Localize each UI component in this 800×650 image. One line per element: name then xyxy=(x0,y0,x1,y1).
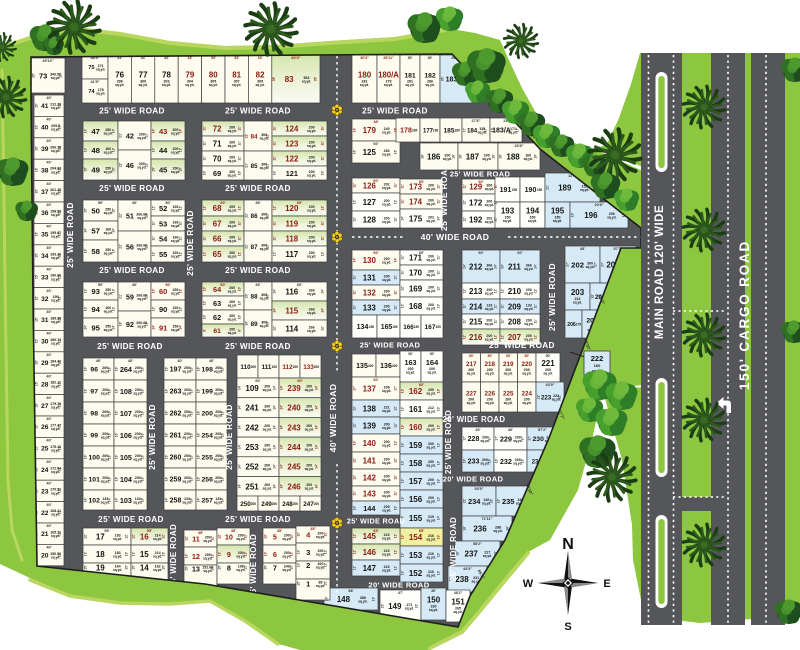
svg-text:14': 14' xyxy=(273,425,277,430)
svg-text:40': 40' xyxy=(46,396,51,400)
svg-text:88: 88 xyxy=(251,293,258,300)
svg-text:65: 65 xyxy=(213,250,222,259)
svg-text:15': 15' xyxy=(34,146,38,151)
svg-text:45: 45 xyxy=(159,165,167,174)
svg-text:40': 40' xyxy=(475,428,480,432)
svg-text:25: 25 xyxy=(41,446,49,453)
svg-text:12': 12' xyxy=(321,252,325,257)
svg-text:15': 15' xyxy=(58,510,62,515)
svg-text:12': 12' xyxy=(494,217,498,222)
svg-text:12': 12' xyxy=(211,536,215,541)
svg-text:40': 40' xyxy=(46,203,51,207)
svg-text:15': 15' xyxy=(112,167,116,172)
svg-text:sq.yd.: sq.yd. xyxy=(263,487,272,491)
svg-text:13': 13' xyxy=(437,535,441,540)
svg-text:253: 253 xyxy=(245,443,259,452)
svg-text:12': 12' xyxy=(179,206,183,211)
svg-text:21: 21 xyxy=(41,531,49,538)
svg-text:12': 12' xyxy=(238,252,242,257)
svg-text:11': 11' xyxy=(272,236,276,240)
svg-text:132: 132 xyxy=(363,289,377,298)
svg-text:16': 16' xyxy=(394,150,398,155)
svg-text:50': 50' xyxy=(165,201,170,205)
svg-text:20': 20' xyxy=(266,294,270,299)
svg-text:15': 15' xyxy=(217,565,221,570)
svg-text:110: 110 xyxy=(240,364,251,371)
svg-text:sq.yd.: sq.yd. xyxy=(382,260,391,264)
svg-text:15': 15' xyxy=(211,566,215,571)
svg-text:14': 14' xyxy=(273,484,277,489)
svg-text:202: 202 xyxy=(571,260,584,269)
svg-text:170: 170 xyxy=(409,269,423,278)
svg-text:30': 30' xyxy=(408,56,413,60)
svg-text:16': 16' xyxy=(221,433,225,438)
svg-text:13': 13' xyxy=(211,554,215,559)
svg-text:MAIN ROAD 120' WIDE: MAIN ROAD 120' WIDE xyxy=(654,205,666,339)
svg-text:15': 15' xyxy=(58,253,62,258)
svg-text:12': 12' xyxy=(244,534,248,539)
svg-text:14: 14 xyxy=(140,564,149,573)
svg-text:12': 12' xyxy=(352,550,356,555)
svg-text:43: 43 xyxy=(159,127,167,136)
svg-text:14': 14' xyxy=(237,425,241,430)
svg-text:164: 164 xyxy=(426,358,439,367)
svg-text:25' WIDE ROAD: 25' WIDE ROAD xyxy=(225,342,291,351)
svg-text:27': 27' xyxy=(594,262,598,267)
svg-text:15': 15' xyxy=(34,103,38,108)
svg-text:24: 24 xyxy=(41,467,49,474)
svg-text:14': 14' xyxy=(83,129,87,134)
svg-text:16': 16' xyxy=(196,433,200,438)
svg-text:11': 11' xyxy=(272,156,276,160)
svg-text:180: 180 xyxy=(412,129,418,133)
svg-text:11': 11' xyxy=(462,319,466,323)
svg-text:sq.yd.: sq.yd. xyxy=(307,329,316,333)
svg-text:71'11": 71'11" xyxy=(482,517,493,521)
svg-text:60': 60' xyxy=(419,180,424,184)
svg-text:13': 13' xyxy=(437,461,441,466)
svg-text:153: 153 xyxy=(409,551,423,560)
svg-text:23: 23 xyxy=(41,488,49,495)
svg-text:16': 16' xyxy=(164,367,168,372)
svg-text:15': 15' xyxy=(34,274,38,279)
svg-text:16': 16' xyxy=(114,477,118,482)
svg-text:14': 14' xyxy=(221,498,225,503)
svg-text:16': 16' xyxy=(190,433,194,438)
svg-text:16': 16' xyxy=(462,459,466,464)
svg-text:22': 22' xyxy=(266,134,270,139)
svg-text:93: 93 xyxy=(91,287,100,296)
svg-text:13': 13' xyxy=(179,289,183,294)
svg-text:19': 19' xyxy=(458,154,462,159)
svg-text:sq.yd.: sq.yd. xyxy=(228,331,237,335)
svg-text:14': 14' xyxy=(315,385,319,390)
svg-text:116: 116 xyxy=(285,288,298,297)
svg-text:16': 16' xyxy=(488,459,492,464)
svg-text:222: 222 xyxy=(591,354,604,363)
svg-text:145: 145 xyxy=(363,532,377,541)
svg-text:131: 131 xyxy=(363,274,377,283)
svg-text:40': 40' xyxy=(46,439,51,443)
svg-text:27'6": 27'6" xyxy=(471,119,480,123)
svg-text:249: 249 xyxy=(261,501,272,508)
svg-text:114: 114 xyxy=(285,325,298,334)
svg-text:15': 15' xyxy=(34,167,38,172)
svg-text:45': 45' xyxy=(310,527,315,531)
svg-text:13': 13' xyxy=(151,307,155,312)
svg-text:80: 80 xyxy=(209,71,218,80)
svg-text:254: 254 xyxy=(202,433,214,440)
svg-text:162: 162 xyxy=(409,387,423,396)
svg-text:sq.yd.: sq.yd. xyxy=(382,426,391,430)
svg-text:63: 63 xyxy=(213,299,221,308)
svg-text:79: 79 xyxy=(185,71,194,80)
svg-text:sq.yd.: sq.yd. xyxy=(382,409,391,413)
svg-text:16': 16' xyxy=(190,455,194,460)
svg-text:119: 119 xyxy=(286,220,299,229)
svg-text:12': 12' xyxy=(394,475,398,480)
svg-text:sq.yd.: sq.yd. xyxy=(185,83,194,87)
svg-text:15': 15' xyxy=(58,296,62,301)
svg-text:60': 60' xyxy=(478,251,483,255)
svg-text:123: 123 xyxy=(285,140,299,149)
svg-text:sq.yd.: sq.yd. xyxy=(426,445,435,449)
svg-text:165: 165 xyxy=(381,324,393,331)
svg-text:40': 40' xyxy=(46,96,51,100)
svg-text:12': 12' xyxy=(394,566,398,571)
svg-text:15': 15' xyxy=(58,446,62,451)
svg-text:150' CARGO ROAD: 150' CARGO ROAD xyxy=(737,240,752,390)
svg-text:15': 15' xyxy=(58,317,62,322)
svg-text:69: 69 xyxy=(213,169,221,178)
svg-text:13': 13' xyxy=(400,425,404,430)
svg-text:200: 200 xyxy=(272,502,278,506)
svg-text:12': 12' xyxy=(462,289,466,294)
svg-text:12': 12' xyxy=(263,534,267,539)
svg-text:124: 124 xyxy=(285,125,299,134)
svg-text:49'10": 49'10" xyxy=(42,59,53,63)
svg-text:25' WIDE ROAD: 25' WIDE ROAD xyxy=(169,524,178,588)
svg-text:60': 60' xyxy=(297,379,302,383)
svg-text:14': 14' xyxy=(315,484,319,489)
svg-text:118: 118 xyxy=(286,235,299,244)
svg-text:11': 11' xyxy=(179,221,183,225)
svg-text:44: 44 xyxy=(159,146,168,155)
svg-text:14': 14' xyxy=(279,444,283,449)
svg-text:12': 12' xyxy=(462,200,466,205)
svg-text:12': 12' xyxy=(290,534,294,539)
svg-text:12': 12' xyxy=(202,206,206,211)
svg-text:17': 17' xyxy=(352,386,356,391)
svg-text:15': 15' xyxy=(324,581,328,586)
svg-text:60': 60' xyxy=(373,251,378,255)
svg-text:sq.yd.: sq.yd. xyxy=(113,537,122,541)
svg-text:40': 40' xyxy=(132,283,137,287)
svg-text:53: 53 xyxy=(159,219,167,228)
svg-text:233: 233 xyxy=(468,459,480,466)
svg-text:166: 166 xyxy=(403,324,414,331)
svg-text:48'2": 48'2" xyxy=(454,591,463,595)
svg-text:sq.yd.: sq.yd. xyxy=(426,409,435,413)
svg-text:61: 61 xyxy=(213,328,221,335)
svg-text:sq.yd.: sq.yd. xyxy=(382,568,391,572)
svg-text:242: 242 xyxy=(245,423,259,432)
svg-text:14': 14' xyxy=(237,405,241,410)
svg-text:25' WIDE ROAD: 25' WIDE ROAD xyxy=(148,404,157,470)
svg-text:13': 13' xyxy=(244,552,248,557)
svg-text:215: 215 xyxy=(469,318,483,327)
svg-text:sq.yd.: sq.yd. xyxy=(425,83,434,87)
svg-text:sq.yd.: sq.yd. xyxy=(382,308,391,312)
svg-text:24': 24' xyxy=(462,264,466,269)
svg-text:sq.yd.: sq.yd. xyxy=(382,220,391,224)
svg-text:68: 68 xyxy=(213,204,222,213)
svg-text:161: 161 xyxy=(409,405,423,414)
svg-text:111: 111 xyxy=(262,364,272,371)
svg-text:21': 21' xyxy=(145,133,149,138)
svg-text:15': 15' xyxy=(58,531,62,536)
svg-text:244: 244 xyxy=(287,443,301,452)
svg-text:14': 14' xyxy=(114,498,118,503)
svg-text:11': 11' xyxy=(394,183,398,187)
svg-text:14': 14' xyxy=(400,216,404,221)
svg-text:sq.yd.: sq.yd. xyxy=(504,401,513,405)
svg-text:12': 12' xyxy=(500,335,504,340)
svg-text:40': 40' xyxy=(46,289,51,293)
svg-text:14': 14' xyxy=(237,484,241,489)
svg-text:58'2": 58'2" xyxy=(473,542,482,546)
svg-text:22': 22' xyxy=(462,499,466,504)
svg-text:146: 146 xyxy=(363,548,377,557)
svg-text:14': 14' xyxy=(83,228,87,233)
svg-text:11': 11' xyxy=(202,156,206,160)
svg-text:92: 92 xyxy=(126,320,134,329)
svg-text:55': 55' xyxy=(104,529,109,533)
svg-text:sq.yd.: sq.yd. xyxy=(580,188,589,192)
svg-text:12': 12' xyxy=(352,458,356,463)
svg-text:22': 22' xyxy=(244,134,248,139)
svg-text:18: 18 xyxy=(96,550,105,559)
svg-text:40: 40 xyxy=(41,125,49,132)
svg-text:13': 13' xyxy=(184,554,188,559)
svg-text:16': 16' xyxy=(164,411,168,416)
svg-text:13': 13' xyxy=(400,571,404,576)
svg-text:9': 9' xyxy=(202,329,206,332)
svg-text:sq.yd.: sq.yd. xyxy=(382,443,391,447)
svg-text:212: 212 xyxy=(469,263,483,272)
svg-text:14': 14' xyxy=(190,498,194,503)
svg-text:14': 14' xyxy=(272,308,276,313)
svg-text:40': 40' xyxy=(46,374,51,378)
svg-text:210: 210 xyxy=(508,287,522,296)
svg-text:sq.yd.: sq.yd. xyxy=(307,173,316,177)
svg-text:16': 16' xyxy=(141,367,145,372)
svg-text:16': 16' xyxy=(196,411,200,416)
svg-text:29: 29 xyxy=(41,360,49,367)
svg-text:24': 24' xyxy=(494,264,498,269)
svg-text:sq.yd.: sq.yd. xyxy=(382,552,391,556)
svg-text:154: 154 xyxy=(409,533,423,542)
svg-text:sq.yd.: sq.yd. xyxy=(138,83,147,87)
svg-text:150: 150 xyxy=(436,325,442,329)
svg-text:sq.yd.: sq.yd. xyxy=(426,537,435,541)
svg-text:133: 133 xyxy=(363,304,377,313)
svg-text:sq.yd.: sq.yd. xyxy=(228,224,237,228)
svg-text:14': 14' xyxy=(112,129,116,134)
svg-text:16': 16' xyxy=(114,433,118,438)
svg-text:17': 17' xyxy=(462,436,466,441)
svg-text:16': 16' xyxy=(141,433,145,438)
svg-text:139: 139 xyxy=(363,422,377,431)
svg-text:108: 108 xyxy=(120,387,132,396)
svg-text:33': 33' xyxy=(211,56,216,60)
svg-text:23': 23' xyxy=(415,604,419,609)
svg-text:100: 100 xyxy=(89,455,101,462)
svg-text:13': 13' xyxy=(400,389,404,394)
svg-text:190: 190 xyxy=(525,187,537,194)
svg-text:11: 11 xyxy=(192,534,200,543)
svg-text:60': 60' xyxy=(220,283,225,287)
svg-text:16': 16' xyxy=(190,367,194,372)
svg-text:53'5": 53'5" xyxy=(474,487,483,491)
svg-text:45': 45' xyxy=(277,529,282,533)
svg-text:86: 86 xyxy=(251,213,258,220)
svg-text:241: 241 xyxy=(245,404,259,413)
svg-text:sq.yd.: sq.yd. xyxy=(524,157,533,161)
svg-text:40': 40' xyxy=(209,359,214,363)
svg-text:138: 138 xyxy=(363,405,377,414)
svg-text:121: 121 xyxy=(286,169,298,178)
svg-text:16': 16' xyxy=(190,477,194,482)
svg-text:256: 256 xyxy=(202,477,214,484)
svg-text:15': 15' xyxy=(184,566,188,571)
svg-text:12': 12' xyxy=(462,335,466,340)
svg-text:12': 12' xyxy=(83,534,87,539)
svg-text:35': 35' xyxy=(272,77,276,82)
svg-text:40': 40' xyxy=(46,417,51,421)
svg-text:12': 12' xyxy=(534,289,538,294)
svg-text:25' WIDE ROAD: 25' WIDE ROAD xyxy=(547,263,557,331)
svg-text:41'5": 41'5" xyxy=(90,80,99,84)
svg-text:3: 3 xyxy=(306,548,310,557)
svg-text:24': 24' xyxy=(500,264,504,269)
svg-text:19': 19' xyxy=(420,154,424,159)
svg-text:13': 13' xyxy=(400,479,404,484)
svg-text:45': 45' xyxy=(198,531,203,535)
svg-text:16': 16' xyxy=(141,411,145,416)
svg-text:203: 203 xyxy=(571,288,585,297)
svg-text:sq.yd.: sq.yd. xyxy=(307,239,316,243)
svg-text:sq.yd.: sq.yd. xyxy=(360,83,369,87)
svg-text:19': 19' xyxy=(570,213,574,218)
svg-text:17: 17 xyxy=(96,533,105,542)
svg-text:15': 15' xyxy=(83,208,87,213)
svg-text:11': 11' xyxy=(494,319,498,323)
svg-text:sq.yd.: sq.yd. xyxy=(382,202,391,206)
svg-text:35': 35' xyxy=(440,77,444,82)
svg-text:34: 34 xyxy=(41,253,49,260)
svg-text:sq.yd.: sq.yd. xyxy=(426,555,435,559)
svg-text:50': 50' xyxy=(98,201,103,205)
svg-text:sq.yd.: sq.yd. xyxy=(426,518,435,522)
svg-text:sq.yd.: sq.yd. xyxy=(228,173,237,177)
svg-text:13': 13' xyxy=(394,441,398,446)
svg-text:25' WIDE ROAD: 25' WIDE ROAD xyxy=(186,210,195,276)
svg-text:21': 21' xyxy=(545,185,549,190)
svg-text:16': 16' xyxy=(83,455,87,460)
svg-text:13': 13' xyxy=(151,289,155,294)
svg-text:21': 21' xyxy=(145,294,149,299)
svg-text:257: 257 xyxy=(202,498,214,505)
svg-text:12': 12' xyxy=(394,550,398,555)
svg-text:216: 216 xyxy=(469,333,483,342)
svg-text:15': 15' xyxy=(58,232,62,237)
svg-text:15': 15' xyxy=(58,167,62,172)
svg-text:13': 13' xyxy=(437,304,441,309)
svg-text:186: 186 xyxy=(427,153,441,162)
svg-text:13': 13' xyxy=(437,389,441,394)
svg-text:sq.yd.: sq.yd. xyxy=(426,573,435,577)
svg-text:15': 15' xyxy=(244,565,248,570)
svg-text:150: 150 xyxy=(537,188,543,192)
svg-text:84: 84 xyxy=(251,133,258,140)
svg-text:209: 209 xyxy=(508,303,522,312)
svg-text:155: 155 xyxy=(409,514,423,523)
svg-text:14': 14' xyxy=(83,325,87,330)
svg-text:200: 200 xyxy=(293,502,299,506)
svg-text:40': 40' xyxy=(46,332,51,336)
svg-text:15': 15' xyxy=(125,565,129,570)
svg-text:16': 16' xyxy=(114,367,118,372)
svg-text:12': 12' xyxy=(494,289,498,294)
svg-text:70: 70 xyxy=(213,155,222,164)
svg-text:15': 15' xyxy=(58,125,62,130)
svg-text:11': 11' xyxy=(494,184,498,188)
svg-text:sq.yd.: sq.yd. xyxy=(573,301,582,305)
svg-text:15': 15' xyxy=(58,467,62,472)
svg-text:15': 15' xyxy=(34,339,38,344)
svg-text:12': 12' xyxy=(238,206,242,211)
svg-text:28: 28 xyxy=(41,381,49,388)
svg-text:16': 16' xyxy=(114,455,118,460)
svg-text:13': 13' xyxy=(400,497,404,502)
svg-text:sq.yd.: sq.yd. xyxy=(96,91,105,95)
svg-text:25': 25' xyxy=(59,73,63,78)
svg-text:211: 211 xyxy=(508,263,521,272)
svg-text:sq.yd.: sq.yd. xyxy=(453,610,462,614)
svg-text:15': 15' xyxy=(179,167,183,172)
svg-text:195: 195 xyxy=(551,207,565,216)
svg-text:235: 235 xyxy=(502,497,514,506)
svg-text:11': 11' xyxy=(400,255,404,259)
svg-text:22': 22' xyxy=(145,163,149,168)
svg-text:15': 15' xyxy=(58,103,62,108)
svg-text:sq.yd.: sq.yd. xyxy=(524,291,533,295)
svg-text:sq.yd.: sq.yd. xyxy=(305,487,314,491)
svg-text:188: 188 xyxy=(506,153,520,162)
svg-text:27': 27' xyxy=(600,262,604,267)
svg-text:25' WIDE ROAD: 25' WIDE ROAD xyxy=(66,202,75,268)
svg-text:11': 11' xyxy=(151,236,155,240)
svg-text:20: 20 xyxy=(41,553,49,560)
svg-text:130: 130 xyxy=(363,256,377,265)
svg-text:sq.yd.: sq.yd. xyxy=(228,159,237,163)
svg-text:16': 16' xyxy=(352,128,356,133)
svg-text:25' WIDE ROAD: 25' WIDE ROAD xyxy=(98,515,164,524)
svg-text:47: 47 xyxy=(91,127,100,136)
svg-text:16': 16' xyxy=(83,249,87,254)
svg-text:11': 11' xyxy=(394,275,398,279)
